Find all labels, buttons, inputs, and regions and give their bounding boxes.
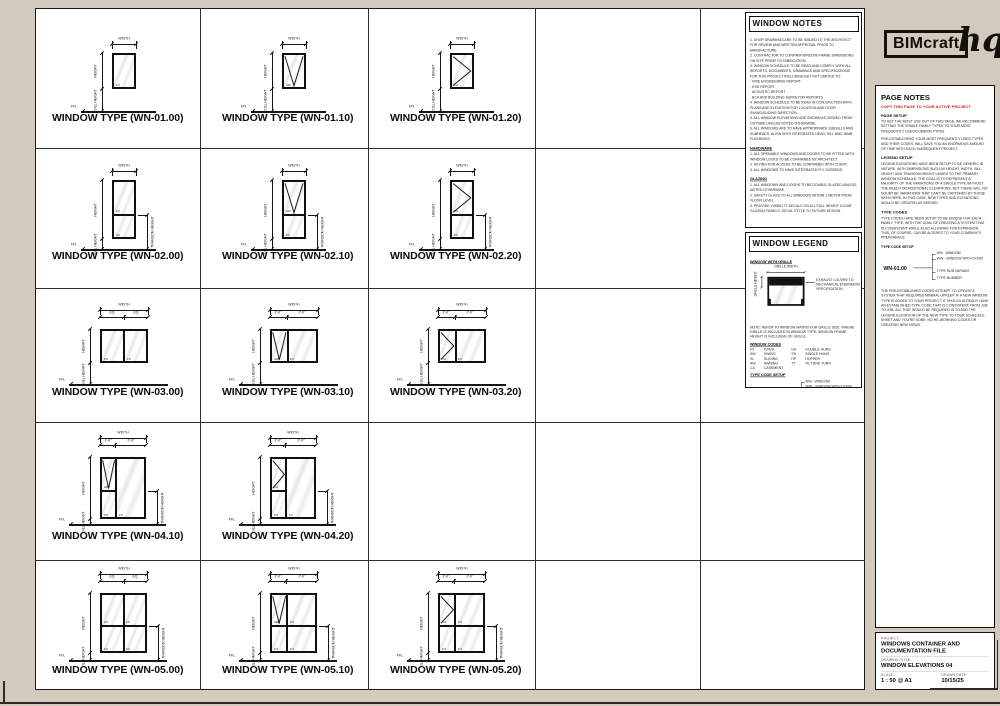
grid-line xyxy=(35,560,865,561)
dim-label: 2'-0" xyxy=(467,311,474,314)
ffl-label: FFL xyxy=(241,105,247,108)
pane-operation-label: CA xyxy=(442,621,446,624)
dimension-line xyxy=(306,41,307,49)
grille-band xyxy=(769,279,803,286)
dim-label: TRANSOM HEIGHT xyxy=(151,216,154,248)
dim-label: TRANSOM HEIGHT xyxy=(331,492,334,524)
dimension-line xyxy=(282,168,283,176)
code: TT xyxy=(791,362,801,365)
type-code-setup-heading: TYPE CODE SETUP xyxy=(750,373,857,377)
window-pane: FX xyxy=(114,216,134,237)
window-caption: WINDOW TYPE (WN-03.20) xyxy=(390,386,521,398)
ffl-label: FFL xyxy=(241,243,247,246)
page-setup-p2: PRE-ESTABLISHING YOUR MOST FREQUENTLY US… xyxy=(881,137,989,152)
pane-operation-label: FX xyxy=(104,621,108,624)
window-caption: WINDOW TYPE (WN-02.10) xyxy=(222,250,353,262)
dim-label: SILL HEIGHT xyxy=(432,89,435,110)
casement-glyph xyxy=(452,55,472,87)
connector-line xyxy=(932,272,935,273)
dimension-line xyxy=(474,168,475,176)
pane-operation-label: FX xyxy=(286,234,290,237)
casement-glyph xyxy=(440,331,455,361)
pane-operation-label: CA xyxy=(454,84,458,87)
window-frame-wn-02.10: AWFX xyxy=(282,180,306,239)
logo-suffix: hq xyxy=(958,20,1000,59)
pane-operation-label: FX xyxy=(290,648,294,651)
window-frame-wn-04.10: AWFXFX xyxy=(100,457,146,519)
window-pane: AW xyxy=(284,182,304,214)
pane-operation-label: FX xyxy=(104,514,108,517)
dimension-line xyxy=(282,41,283,49)
window-legend-body: WINDOW WITH GRILLE GRILLE WIDTH GRILLE H… xyxy=(746,254,861,388)
dimension-width xyxy=(282,44,306,45)
dim-label: 2'-0" xyxy=(299,311,306,314)
window-pane: FX xyxy=(440,627,454,651)
connector-line xyxy=(913,267,932,268)
type-code-wn: WN - WINDOW xyxy=(937,252,961,255)
window-notes-body: 1. SHOP DRAWINGS ARE TO BE ISSUED TO THE… xyxy=(746,34,861,228)
type-code-variant: TYPE SUB VARIANT xyxy=(937,270,970,273)
window-pane: FX xyxy=(288,627,315,651)
pane-operation-label: FX xyxy=(458,358,462,361)
dim-label: TRANSOM HEIGHT xyxy=(332,627,335,659)
dimension-height xyxy=(260,329,261,384)
dim-label: HEIGHT xyxy=(420,616,423,629)
dimension-line xyxy=(454,579,455,584)
connector-line xyxy=(801,383,802,388)
dim-label: EQ xyxy=(133,311,138,314)
window-pane: FX xyxy=(456,627,483,651)
connector-line xyxy=(932,279,935,280)
dimension-transom-height xyxy=(157,491,158,524)
pane-operation-label: FX xyxy=(119,514,123,517)
pane-operation-label: FX xyxy=(458,648,462,651)
page-setup-heading: PAGE SETUP xyxy=(881,114,989,118)
pane-operation-label: FX xyxy=(290,621,294,624)
window-frame-wn-02.20: CAFX xyxy=(450,180,474,239)
dim-label: HEIGHT xyxy=(432,64,435,77)
code: FX xyxy=(750,348,760,351)
dim-label: TRANSOM HEIGHT xyxy=(321,216,324,248)
dim-label: WIDTH xyxy=(456,37,467,40)
window-frame-wn-01.10: AW xyxy=(282,53,306,89)
window-frame-wn-05.20: CAFXFXFX xyxy=(438,593,485,653)
connector-line xyxy=(932,254,935,255)
dim-label: SILL HEIGHT xyxy=(252,511,255,532)
window-codes-right: DHDOUBLE HUNG SHSINGLE HUNG HPHOPPER TTT… xyxy=(791,348,830,370)
page-notes-panel: PAGE NOTES COPY THIS PAGE TO YOUR ACTIVE… xyxy=(875,85,995,628)
dim-label: HEIGHT xyxy=(82,616,85,629)
page-setup-p1: TO GET THE MOST USE OUT OF THIS PAGE, WE… xyxy=(881,120,989,135)
pane-operation-label: FX xyxy=(290,358,294,361)
pane-operation-label: AW xyxy=(274,358,279,361)
dim-tick xyxy=(803,271,805,273)
window-frame-wn-03.10: AWFX xyxy=(270,329,318,363)
window-pane: FX xyxy=(288,595,315,625)
dimension-transom-height xyxy=(147,215,148,249)
drawing-title: WINDOW ELEVATIONS 04 xyxy=(881,663,989,670)
connector-line xyxy=(801,383,804,384)
pane-operation-label: AW xyxy=(274,621,279,624)
ground-line xyxy=(239,524,336,526)
window-pane: FX xyxy=(456,595,483,625)
window-pane: FX xyxy=(102,595,123,625)
scale-value: 1 : 50 @ A1 xyxy=(881,677,941,684)
window-frame-wn-03.20: CAFX xyxy=(438,329,486,363)
pane-operation-label: FX xyxy=(458,621,462,624)
pane-operation-label: AW xyxy=(104,486,109,489)
type-code-diagram: WN-01.00 WN - WINDOW WW - WINDOW WITH DO… xyxy=(750,379,857,388)
window-caption: WINDOW TYPE (WN-01.20) xyxy=(390,112,521,124)
dimension-height xyxy=(428,329,429,384)
dim-label: HEIGHT xyxy=(420,339,423,352)
window-pane: FX xyxy=(272,627,286,651)
dim-label: TRANSOM HEIGHT xyxy=(161,492,164,524)
dim-label: HEIGHT xyxy=(432,203,435,216)
ffl-label: FFL xyxy=(229,378,235,381)
date-cell: DRAWN DATE 10/15/25 xyxy=(941,673,966,685)
window-pane: FX xyxy=(102,627,123,651)
copy-warning: COPY THIS PAGE TO YOUR ACTIVE PROJECT xyxy=(881,105,989,109)
window-pane: FX xyxy=(125,627,146,651)
ground-line xyxy=(69,524,166,526)
window-pane: FX xyxy=(102,492,115,517)
dim-label: 1'-0" xyxy=(443,311,450,314)
dim-label: 2'-0" xyxy=(127,439,134,442)
dimension-width xyxy=(282,171,306,172)
window-notes-hardware-heading: HARDWARE xyxy=(750,146,857,150)
dimension-sub xyxy=(270,445,316,446)
window-caption: WINDOW TYPE (WN-05.10) xyxy=(222,664,353,676)
window-notes-glazing-heading: GLAZING xyxy=(750,177,857,181)
dim-label: WIDTH xyxy=(288,37,299,40)
window-legend-title: WINDOW LEGEND xyxy=(749,236,859,252)
dim-label: HEIGHT xyxy=(82,339,85,352)
dim-label: 2'-0" xyxy=(298,575,305,578)
type-code-ww: WW - WINDOW WITH DOOR xyxy=(937,257,983,260)
dimension-transom-height xyxy=(496,626,497,660)
ffl-label: FFL xyxy=(229,518,235,521)
sheet-canvas: WINDOW NOTES 1. SHOP DRAWINGS ARE TO BE … xyxy=(0,0,1000,706)
drawing-title-label: DRAWING TITLE xyxy=(881,658,989,661)
dimension-height xyxy=(90,329,91,384)
closing-p: THE PRE-ESTABLISHED CODES ATTEMPT TO CRE… xyxy=(881,289,989,328)
dimension-width xyxy=(100,310,148,311)
window-caption: WINDOW TYPE (WN-01.10) xyxy=(222,112,353,124)
code: AW xyxy=(750,362,760,365)
window-caption: WINDOW TYPE (WN-03.10) xyxy=(222,386,353,398)
window-pane: FX xyxy=(102,331,123,361)
dimension-line xyxy=(285,443,286,448)
window-frame-wn-03.00: FXFX xyxy=(100,329,148,363)
pane-operation-label: FX xyxy=(126,648,130,651)
grid-line xyxy=(535,8,536,690)
code: DH xyxy=(791,348,801,351)
dimension-width xyxy=(450,171,474,172)
dim-label: SILL HEIGHT xyxy=(82,363,85,384)
awning-glyph xyxy=(284,55,304,87)
code-label: CASEMENT xyxy=(764,367,783,370)
grid-line xyxy=(35,148,865,149)
dim-label: HEIGHT xyxy=(264,64,267,77)
dimension-line xyxy=(115,443,116,448)
pane-operation-label: FX xyxy=(274,648,278,651)
dimension-height xyxy=(440,53,441,111)
ground-line xyxy=(407,660,505,662)
dim-label: 1'-0" xyxy=(274,439,281,442)
window-pane: CA xyxy=(452,55,472,87)
window-caption: WINDOW TYPE (WN-05.20) xyxy=(390,664,521,676)
page-edge-line xyxy=(0,702,1000,704)
window-notes-glazing: 1. ALL WINDOWS AND DOORS TO BE DOUBLE GL… xyxy=(750,183,857,214)
window-pane: FX xyxy=(114,55,134,87)
window-with-grille-diagram: GRILLE WIDTH GRILLE HEIGHT EXHAUST LOUVR… xyxy=(750,266,857,323)
pane-operation-label: FX xyxy=(274,514,278,517)
window-frame-wn-02.00: FXFX xyxy=(112,180,136,239)
code-label: SLIDING xyxy=(764,358,783,361)
dimension-line xyxy=(306,168,307,176)
divider xyxy=(881,671,989,672)
window-pane: FX xyxy=(125,595,146,625)
dimension-width xyxy=(450,44,474,45)
window-caption: WINDOW TYPE (WN-04.20) xyxy=(222,530,353,542)
window-pane: FX xyxy=(287,459,314,517)
type-code-ww: WW - WINDOW WITH DOOR xyxy=(806,385,852,388)
dim-label: EQ xyxy=(109,311,114,314)
type-codes-p: TYPE CODES HAVE BEEN SETUP TO BE UNIQUE … xyxy=(881,216,989,240)
window-pane: CA xyxy=(452,182,472,214)
grille-width-dimline xyxy=(767,272,804,273)
dimension-line xyxy=(112,168,113,176)
type-codes-heading: TYPE CODES xyxy=(881,211,989,215)
code: SH xyxy=(791,353,801,356)
dim-label: 2'-0" xyxy=(297,439,304,442)
dimension-width xyxy=(100,574,147,575)
dimension-line xyxy=(455,315,456,320)
window-pane: CA xyxy=(440,595,454,625)
dim-label: WIDTH xyxy=(117,431,128,434)
window-pane: FX xyxy=(272,492,285,517)
dim-label: 2'-0" xyxy=(466,575,473,578)
grille-width-label: GRILLE WIDTH xyxy=(774,265,798,268)
window-pane: FX xyxy=(452,216,472,237)
bimcraft-logo: BIMcraft hq xyxy=(884,30,968,58)
dim-label: WIDTH xyxy=(118,567,129,570)
dim-label: HEIGHT xyxy=(252,481,255,494)
dimension-line xyxy=(136,41,137,49)
dim-label: HEIGHT xyxy=(94,203,97,216)
page-notes-title: PAGE NOTES xyxy=(881,93,989,102)
window-pane: CA xyxy=(440,331,455,361)
window-notes-general: 1. SHOP DRAWINGS ARE TO BE ISSUED TO THE… xyxy=(750,38,857,142)
window-caption: WINDOW TYPE (WN-01.00) xyxy=(52,112,183,124)
pane-operation-label: CA xyxy=(454,210,458,213)
pane-operation-label: AW xyxy=(286,84,291,87)
dim-label: HEIGHT xyxy=(82,481,85,494)
corner-mark xyxy=(3,681,5,703)
dim-label: WIDTH xyxy=(287,431,298,434)
grid-line xyxy=(700,8,701,690)
ffl-label: FFL xyxy=(59,378,65,381)
awning-glyph xyxy=(272,331,287,361)
code: CA xyxy=(750,367,760,370)
dimension-sub xyxy=(270,317,318,318)
window-pane: AW xyxy=(272,331,287,361)
window-frame-wn-05.00: FXFXFXFX xyxy=(100,593,147,653)
window-leg xyxy=(801,299,803,306)
pane-operation-label: FX xyxy=(116,210,120,213)
window-leg xyxy=(769,299,771,306)
dim-label: TRANSOM HEIGHT xyxy=(500,627,503,659)
dim-label: HEIGHT xyxy=(264,203,267,216)
dim-label: WIDTH xyxy=(118,37,129,40)
pane-operation-label: FX xyxy=(126,621,130,624)
window-pane: AW xyxy=(272,595,286,625)
dim-label: WIDTH xyxy=(118,164,129,167)
window-frame-wn-01.00: FX xyxy=(112,53,136,89)
type-code-diagram: WN-01.00 WN - WINDOW WW - WINDOW WITH DO… xyxy=(881,251,989,286)
dim-label: HEIGHT xyxy=(94,64,97,77)
code: SL xyxy=(750,358,760,361)
dim-label: TRANSOM HEIGHT xyxy=(162,627,165,659)
dim-label: SILL HEIGHT xyxy=(94,89,97,110)
dimension-transom-height xyxy=(158,626,159,660)
dim-label: WIDTH xyxy=(288,303,299,306)
grille-note: NOTE: REFER TO WINDOW MATRIX FOR GRILLE … xyxy=(750,326,857,340)
dim-label: 1'-0" xyxy=(275,311,282,314)
dimension-transom-height xyxy=(327,491,328,524)
code: SW xyxy=(750,353,760,356)
dim-label: WIDTH xyxy=(456,303,467,306)
window-codes-left: FXFIXED SWSWING SLSLIDING AWAWNING CACAS… xyxy=(750,348,783,370)
ffl-label: FFL xyxy=(409,243,415,246)
ffl-label: FFL xyxy=(71,105,77,108)
pane-operation-label: FX xyxy=(104,358,108,361)
window-frame-wn-04.20: CAFXFX xyxy=(270,457,316,519)
dim-label: EQ xyxy=(109,575,114,578)
window-frame-wn-01.20: CA xyxy=(450,53,474,89)
code-label: DOUBLE HUNG xyxy=(805,348,831,351)
dimension-width xyxy=(112,44,136,45)
grid-line xyxy=(368,8,369,690)
ground-line xyxy=(69,660,167,662)
dimension-sub xyxy=(270,581,317,582)
code-label: AWNING xyxy=(764,362,783,365)
dimension-line xyxy=(474,41,475,49)
window-caption: WINDOW TYPE (WN-02.20) xyxy=(390,250,521,262)
annotation-leader-line xyxy=(806,282,815,283)
dimension-transom-height xyxy=(485,215,486,249)
window-caption: WINDOW TYPE (WN-03.00) xyxy=(52,386,183,398)
drawn-date-value: 10/15/25 xyxy=(941,677,966,684)
pane-operation-label: FX xyxy=(454,234,458,237)
code-label: SINGLE HUNG xyxy=(805,353,831,356)
connector-line xyxy=(932,259,935,260)
legend-setup-p: LEGEND ELEVATIONS HAVE BEEN SETUP TO BE … xyxy=(881,162,989,206)
grid-line xyxy=(35,422,865,423)
dimension-width xyxy=(112,171,136,172)
pane-operation-label: FX xyxy=(127,358,131,361)
ffl-label: FFL xyxy=(397,378,403,381)
code-label: TILT AND TURN xyxy=(805,362,831,365)
window-pane: AW xyxy=(102,459,115,490)
ffl-label: FFL xyxy=(229,654,235,657)
dimension-sub xyxy=(100,445,146,446)
window-codes-list: FXFIXED SWSWING SLSLIDING AWAWNING CACAS… xyxy=(750,348,857,370)
ground-line xyxy=(239,660,337,662)
dim-label: 1'-0" xyxy=(275,575,282,578)
dim-label: EQ xyxy=(133,575,138,578)
window-notes-panel: WINDOW NOTES 1. SHOP DRAWINGS ARE TO BE … xyxy=(745,12,862,228)
scale-label: SCALE xyxy=(881,673,941,676)
pane-operation-label: CA xyxy=(442,358,446,361)
grille-annotation: EXHAUST LOUVRE TO MECHANICAL ENGINEERS S… xyxy=(816,278,862,292)
dimension-height xyxy=(90,457,91,524)
dimension-line xyxy=(136,168,137,176)
grid-line xyxy=(200,8,201,690)
window-notes-title: WINDOW NOTES xyxy=(749,16,859,32)
window-pane: FX xyxy=(117,459,144,517)
pane-operation-label: FX xyxy=(116,234,120,237)
title-block: PROJECT WINDOWS CONTAINER AND DOCUMENTAT… xyxy=(875,632,995,690)
window-legend-panel: WINDOW LEGEND WINDOW WITH GRILLE GRILLE … xyxy=(745,232,862,388)
ffl-label: FFL xyxy=(409,105,415,108)
dim-label: 1'-0" xyxy=(104,439,111,442)
grille-window-drawing xyxy=(767,277,804,306)
type-code-setup-label: TYPE CODE SETUP xyxy=(881,245,989,248)
pane-operation-label: FX xyxy=(116,84,120,87)
type-code-wn: WN - WINDOW xyxy=(806,380,830,383)
dimension-sub xyxy=(438,581,485,582)
pane-operation-label: CA xyxy=(274,486,278,489)
window-caption: WINDOW TYPE (WN-02.00) xyxy=(52,250,183,262)
dim-label: SILL HEIGHT xyxy=(252,363,255,384)
connector-line xyxy=(932,254,933,280)
corner-mark xyxy=(930,688,998,690)
dim-label: HEIGHT xyxy=(252,339,255,352)
grid-line xyxy=(35,288,865,289)
dim-label: TRANSOM HEIGHT xyxy=(489,216,492,248)
pane-operation-label: AW xyxy=(286,210,291,213)
dimension-line xyxy=(112,41,113,49)
code: HP xyxy=(791,358,801,361)
legend-setup-heading: LEGEND SETUP xyxy=(881,156,989,160)
dimension-line xyxy=(450,41,451,49)
window-caption: WINDOW TYPE (WN-04.10) xyxy=(52,530,183,542)
window-codes-heading: WINDOW CODES xyxy=(750,343,857,347)
window-pane: FX xyxy=(289,331,316,361)
dimension-height xyxy=(260,457,261,524)
project-label: PROJECT xyxy=(881,637,989,640)
dim-label: SILL HEIGHT xyxy=(82,511,85,532)
dim-label: WIDTH xyxy=(288,567,299,570)
dim-tick xyxy=(760,286,762,288)
window-pane: FX xyxy=(284,216,304,237)
pane-operation-label: FX xyxy=(442,648,446,651)
dim-label: WIDTH xyxy=(288,164,299,167)
scale-cell: SCALE 1 : 50 @ A1 xyxy=(881,673,941,685)
dim-label: SILL HEIGHT xyxy=(420,363,423,384)
window-caption: WINDOW TYPE (WN-05.00) xyxy=(52,664,183,676)
dimension-sub xyxy=(438,317,486,318)
dimension-line xyxy=(124,315,125,320)
grille-heading: WINDOW WITH GRILLE xyxy=(750,260,857,264)
dim-label: WIDTH xyxy=(456,567,467,570)
dim-label: HEIGHT xyxy=(252,616,255,629)
type-code-example: WN-01.00 xyxy=(883,265,906,271)
window-notes-hardware: 1. ALL OPENABLE WINDOWS AND DOORS TO BE … xyxy=(750,152,857,173)
type-code-number: TYPE NUMBER xyxy=(937,277,962,280)
